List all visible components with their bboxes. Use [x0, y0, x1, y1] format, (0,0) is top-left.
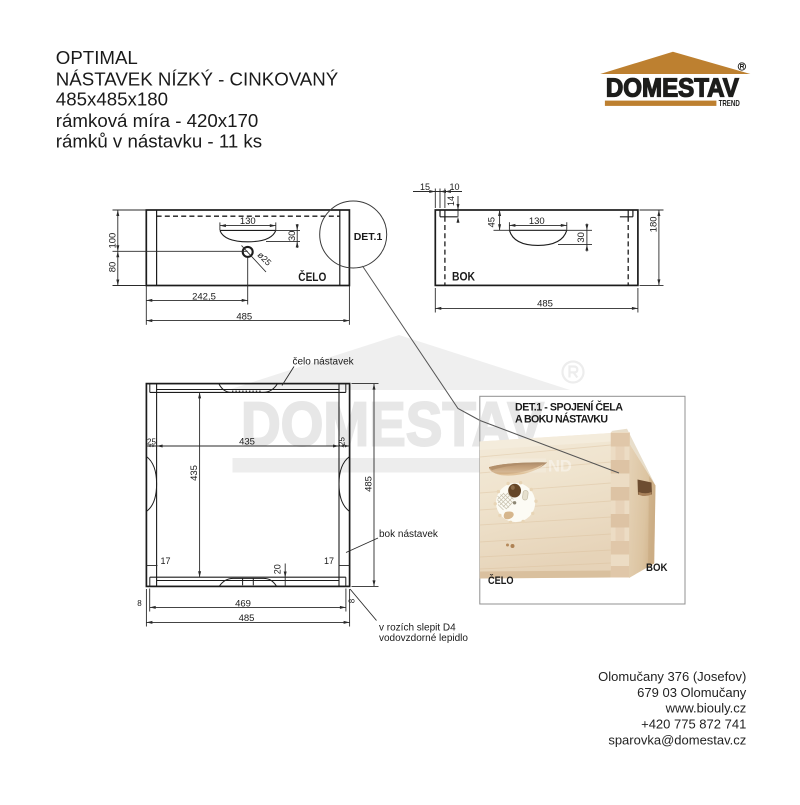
svg-text:485: 485: [236, 312, 252, 323]
svg-text:ČELO: ČELO: [298, 269, 326, 284]
svg-text:OPTIMAL: OPTIMAL: [56, 47, 138, 68]
svg-text:242,5: 242,5: [192, 292, 216, 303]
svg-text:čelo nástavek: čelo nástavek: [293, 357, 355, 368]
svg-text:130: 130: [240, 216, 256, 227]
svg-text:sparovka@domestav.cz: sparovka@domestav.cz: [608, 733, 746, 748]
svg-text:45: 45: [486, 217, 497, 228]
svg-text:30: 30: [287, 231, 298, 242]
svg-text:DET.1 - SPOJENÍ ČELA: DET.1 - SPOJENÍ ČELA: [515, 401, 623, 414]
svg-text:DET.1: DET.1: [354, 231, 383, 243]
svg-text:25: 25: [147, 438, 156, 447]
svg-text:A BOKU NÁSTAVKU: A BOKU NÁSTAVKU: [515, 413, 608, 426]
svg-text:17: 17: [160, 556, 170, 566]
svg-text:BOK: BOK: [452, 269, 475, 283]
svg-text:100: 100: [107, 233, 118, 249]
svg-text:679 03 Olomučany: 679 03 Olomučany: [637, 685, 747, 700]
svg-text:130: 130: [529, 216, 545, 227]
svg-text:8: 8: [137, 599, 142, 608]
svg-text:ND: ND: [548, 458, 572, 476]
svg-text:80: 80: [107, 262, 118, 273]
svg-text:20: 20: [272, 564, 282, 574]
svg-text:485: 485: [364, 476, 375, 492]
svg-text:25: 25: [338, 437, 347, 446]
svg-text:17: 17: [324, 556, 334, 566]
svg-text:ČELO: ČELO: [488, 574, 514, 587]
svg-text:www.biouly.cz: www.biouly.cz: [665, 701, 747, 716]
svg-text:485x485x180: 485x485x180: [56, 89, 168, 110]
svg-text:v rozích slepit D4: v rozích slepit D4: [379, 623, 456, 634]
svg-text:30: 30: [576, 232, 587, 243]
svg-text:NÁSTAVEK NÍZKÝ - CINKOVANÝ: NÁSTAVEK NÍZKÝ - CINKOVANÝ: [56, 69, 339, 90]
svg-text:180: 180: [648, 216, 659, 232]
svg-text:435: 435: [239, 437, 255, 448]
svg-text:15: 15: [420, 182, 430, 192]
svg-text:Olomučany 376 (Josefov): Olomučany 376 (Josefov): [598, 669, 746, 684]
svg-text:BOK: BOK: [646, 562, 668, 574]
svg-text:10: 10: [449, 182, 459, 192]
svg-text:8: 8: [348, 598, 357, 603]
svg-text:469: 469: [235, 598, 251, 609]
svg-text:rámků v nástavku - 11 ks: rámků v nástavku - 11 ks: [56, 131, 262, 152]
svg-text:rámková míra - 420x170: rámková míra - 420x170: [56, 110, 259, 131]
svg-text:bok nástavek: bok nástavek: [379, 529, 439, 540]
svg-text:+420 775 872 741: +420 775 872 741: [641, 717, 746, 732]
svg-text:TREND: TREND: [719, 98, 740, 108]
svg-text:485: 485: [239, 613, 255, 624]
svg-text:485: 485: [537, 298, 553, 309]
svg-text:vodovzdorné lepidlo: vodovzdorné lepidlo: [379, 633, 468, 644]
svg-text:435: 435: [189, 465, 200, 481]
svg-text:14: 14: [446, 196, 456, 206]
